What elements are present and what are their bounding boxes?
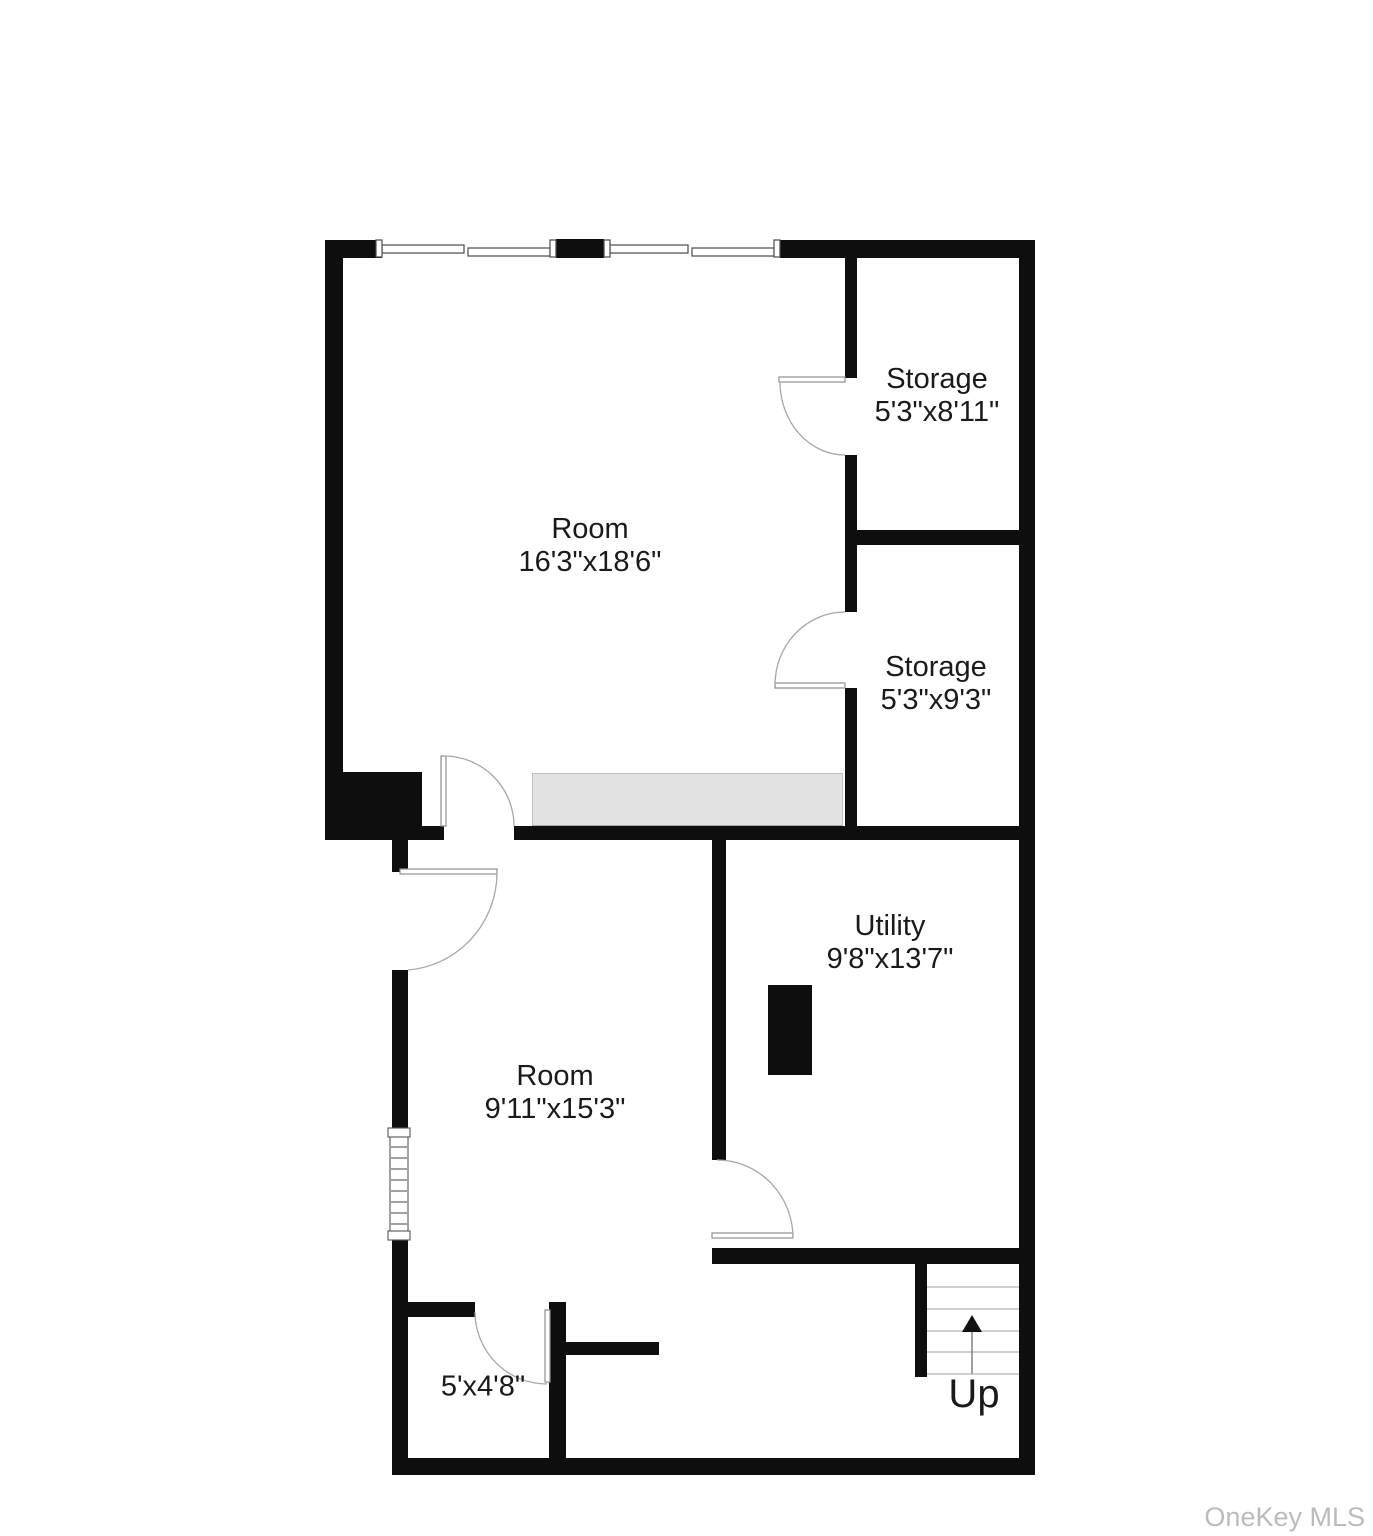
door-arc [775, 612, 845, 685]
door-leaf [400, 869, 497, 874]
door-room-lower-entry [400, 869, 497, 970]
door-storage-mid [775, 612, 845, 688]
door-leaf [545, 1310, 550, 1382]
door-room-main [441, 756, 514, 826]
door-utility [712, 1160, 793, 1238]
room-dims: 9'11"x15'3" [485, 1093, 626, 1126]
room-dims: 5'3"x9'3" [881, 684, 992, 717]
room-label-closet: 5'x4'8" [441, 1371, 525, 1404]
room-label-storage-mid: Storage 5'3"x9'3" [881, 651, 992, 717]
room-name: Storage [886, 363, 988, 395]
door-storage-top [779, 377, 845, 455]
floor-plan-canvas: Room 16'3"x18'6" Storage 5'3"x8'11" Stor… [0, 0, 1373, 1536]
door-leaf [712, 1233, 793, 1238]
window-top-right [604, 240, 780, 257]
room-dims: 16'3"x18'6" [519, 546, 662, 579]
room-name: Room [551, 513, 628, 545]
door-arc [444, 756, 514, 826]
plan-linework [0, 0, 1373, 1536]
stairs [927, 1287, 1019, 1374]
room-label-room-lower: Room 9'11"x15'3" [485, 1060, 626, 1126]
stairs-up-label: Up [948, 1374, 999, 1414]
door-arc [780, 382, 845, 455]
room-label-main: Room 16'3"x18'6" [519, 513, 662, 579]
watermark: OneKey MLS [1204, 1504, 1365, 1531]
room-name: Utility [855, 910, 926, 942]
room-dims: 9'8"x13'7" [827, 943, 954, 976]
door-leaf [779, 377, 845, 382]
up-arrow-icon [962, 1315, 982, 1374]
window-left-wall [388, 1128, 410, 1240]
room-name: Storage [885, 651, 987, 683]
window-top-left [376, 240, 556, 257]
door-leaf [441, 756, 446, 826]
room-dims: 5'x4'8" [441, 1371, 525, 1404]
room-label-storage-top: Storage 5'3"x8'11" [875, 363, 1000, 429]
room-label-utility: Utility 9'8"x13'7" [827, 910, 954, 976]
door-leaf [775, 683, 845, 688]
room-name: Room [516, 1060, 593, 1092]
room-dims: 5'3"x8'11" [875, 396, 1000, 429]
door-arc [408, 872, 497, 970]
door-arc [717, 1160, 793, 1238]
